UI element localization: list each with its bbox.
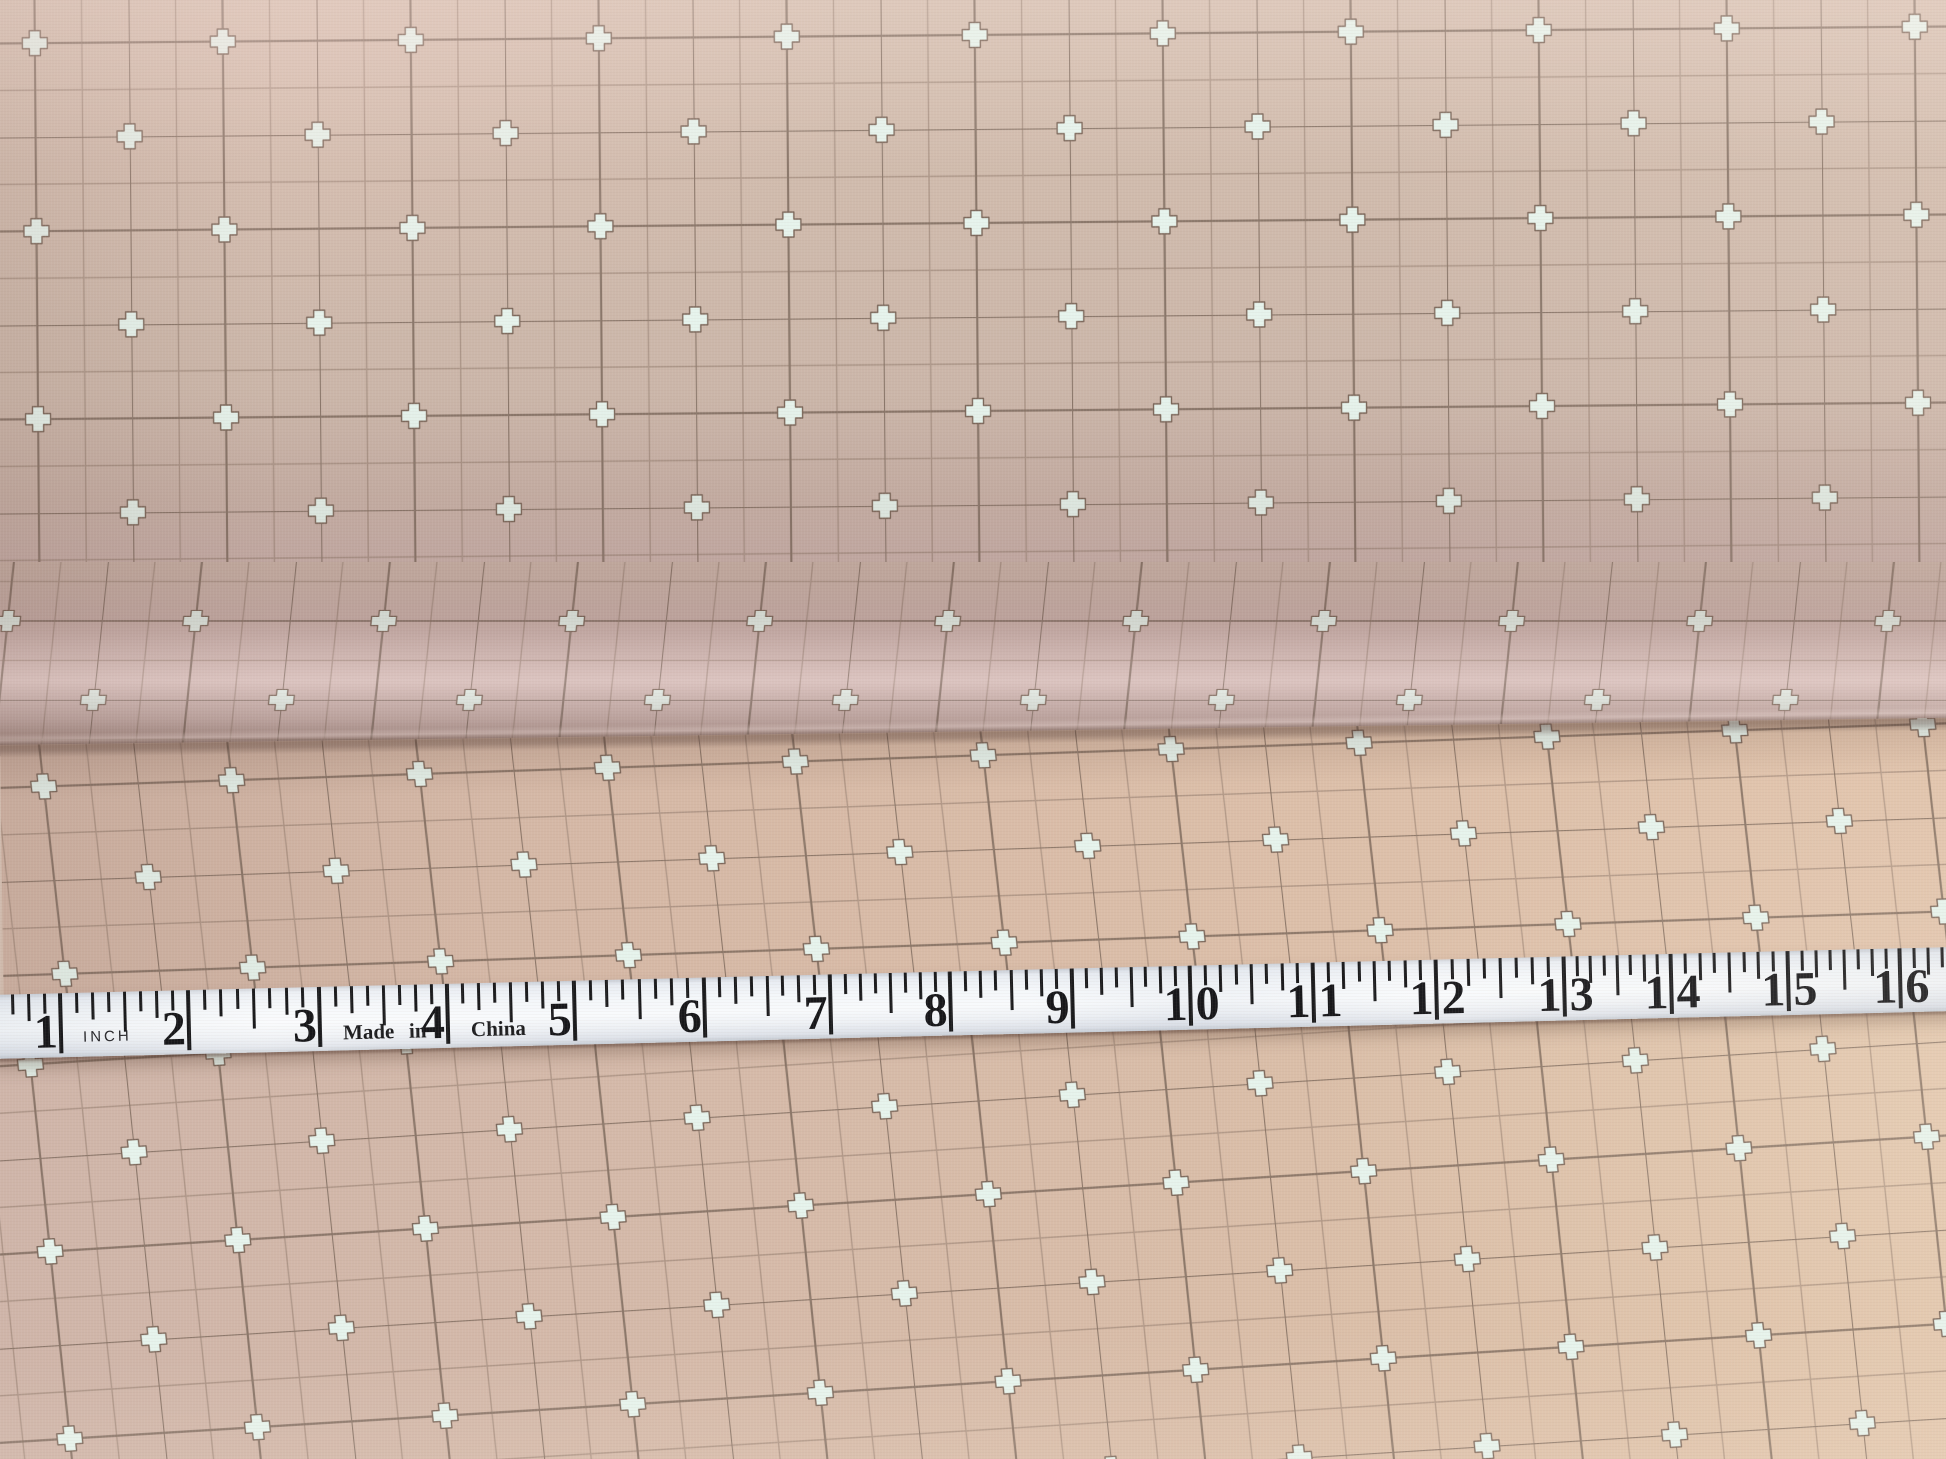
- origin-text-word-2: China: [471, 1018, 526, 1040]
- tick-mark: [1727, 952, 1731, 992]
- tick-mark: [1656, 954, 1659, 974]
- tick-mark: [1357, 962, 1360, 982]
- tick-mark: [1814, 950, 1818, 977]
- inch-number: 1: [1163, 981, 1187, 1030]
- tick-mark: [654, 979, 657, 999]
- inch-number: 3: [292, 1002, 316, 1051]
- tick-mark: [1173, 966, 1176, 986]
- tick-mark: [1742, 952, 1745, 972]
- tick-mark: [797, 975, 801, 1002]
- tick-mark: [1024, 970, 1027, 990]
- tick-mark: [843, 974, 846, 994]
- tick-mark: [285, 988, 289, 1015]
- tick-mark: [1129, 967, 1133, 1007]
- tick-mark: [781, 976, 784, 996]
- tick-mark: [1530, 957, 1534, 984]
- tick-mark: [1040, 969, 1044, 996]
- tick-mark: [1713, 953, 1716, 973]
- tick-mark: [74, 993, 77, 1013]
- tick-mark: [429, 984, 432, 1004]
- tick-mark: [186, 990, 191, 1050]
- tick-mark: [1482, 958, 1485, 978]
- tick-mark: [1897, 948, 1902, 1008]
- tick-mark: [58, 993, 63, 1053]
- tick-mark: [1388, 961, 1391, 981]
- tick-mark: [1684, 954, 1687, 974]
- tick-mark: [1466, 959, 1470, 986]
- tick-mark: [1144, 967, 1147, 987]
- inch-number: 1: [1409, 975, 1433, 1024]
- inch-number: 5: [547, 996, 571, 1045]
- tick-mark: [1800, 951, 1803, 971]
- tick-mark: [1757, 952, 1761, 979]
- tick-mark: [349, 986, 353, 1013]
- tick-mark: [1296, 963, 1299, 983]
- tick-mark: [1250, 964, 1254, 1004]
- tick-mark: [1575, 956, 1578, 976]
- tick-mark: [1280, 963, 1284, 990]
- tick-mark: [154, 991, 158, 1018]
- tick-mark: [1884, 949, 1887, 969]
- tick-mark: [1498, 958, 1502, 998]
- inch-number: 2: [161, 1005, 185, 1054]
- tick-mark: [1403, 960, 1407, 987]
- tick-mark: [1589, 956, 1593, 983]
- tick-mark: [122, 992, 126, 1032]
- tick-mark: [1009, 970, 1013, 1010]
- fabric-photo: INCH Made in China 123456789101112131415…: [0, 0, 1946, 1459]
- tick-mark: [1616, 955, 1620, 995]
- inch-number: 1: [1644, 969, 1668, 1018]
- inch-number: 1: [1761, 966, 1785, 1015]
- tick-mark: [605, 980, 609, 1007]
- tick-mark: [138, 991, 141, 1011]
- tick-mark: [1342, 962, 1346, 989]
- tick-mark: [1940, 947, 1943, 967]
- tick-mark: [979, 971, 983, 998]
- tick-mark: [381, 985, 385, 1025]
- tick-mark: [994, 970, 997, 990]
- tick-mark: [1159, 966, 1163, 993]
- tick-mark: [541, 981, 545, 1008]
- tick-mark: [1373, 961, 1377, 1001]
- inch-number: 4: [1676, 968, 1700, 1017]
- tick-mark: [1265, 964, 1268, 984]
- tick-mark: [26, 994, 30, 1021]
- tick-mark: [493, 983, 496, 1003]
- tick-mark: [1562, 956, 1567, 1016]
- tick-mark: [918, 972, 922, 999]
- tick-mark: [90, 992, 94, 1019]
- inch-number: 1: [1873, 963, 1897, 1012]
- tick-mark: [1085, 968, 1088, 988]
- tick-mark: [1419, 960, 1422, 980]
- tick-mark: [621, 980, 624, 1000]
- tick-mark: [413, 985, 417, 1012]
- tick-mark: [1434, 960, 1439, 1020]
- tick-mark: [718, 977, 721, 997]
- tick-mark: [525, 982, 528, 1002]
- tick-mark: [828, 974, 833, 1034]
- tick-mark: [686, 978, 689, 998]
- tick-mark: [1629, 955, 1632, 975]
- tick-mark: [556, 981, 559, 1001]
- tick-mark: [572, 981, 577, 1041]
- tick-mark: [445, 984, 450, 1044]
- inch-number: 1: [1286, 978, 1310, 1027]
- tick-mark: [1450, 959, 1453, 979]
- fabric-grid-pattern: [0, 0, 1946, 650]
- tick-mark: [1926, 948, 1930, 975]
- tick-mark: [301, 987, 304, 1007]
- tick-mark: [365, 986, 368, 1006]
- tick-mark: [1785, 951, 1790, 1011]
- tick-mark: [10, 994, 13, 1014]
- tick-mark: [1912, 948, 1915, 968]
- inch-number: 7: [803, 990, 827, 1039]
- tick-mark: [589, 980, 592, 1000]
- inch-number: 4: [420, 999, 444, 1048]
- tick-mark: [903, 973, 906, 993]
- tick-mark: [948, 971, 953, 1031]
- tick-mark: [219, 989, 223, 1016]
- inch-number: 5: [1793, 965, 1817, 1014]
- inch-number: 6: [1905, 963, 1929, 1012]
- tick-mark: [1188, 966, 1193, 1026]
- tick-mark: [1514, 958, 1517, 978]
- inch-number: 6: [677, 993, 701, 1042]
- tick-mark: [461, 983, 464, 1003]
- tick-mark: [670, 978, 674, 1005]
- tick-mark: [317, 987, 322, 1047]
- tick-mark: [1234, 965, 1237, 985]
- tick-mark: [1326, 962, 1329, 982]
- tick-mark: [509, 982, 513, 1022]
- tick-mark: [702, 978, 707, 1038]
- inch-number: 1: [1318, 977, 1342, 1026]
- tick-mark: [252, 989, 256, 1029]
- tick-mark: [765, 976, 769, 1016]
- tick-mark: [42, 994, 45, 1014]
- inch-number: 8: [923, 987, 947, 1036]
- tick-mark: [1642, 955, 1646, 982]
- tick-mark: [1698, 953, 1702, 980]
- tick-mark: [1842, 950, 1846, 990]
- tick-mark: [1219, 965, 1223, 992]
- tick-mark: [477, 983, 481, 1010]
- tick-mark: [1070, 969, 1075, 1029]
- fabric-roll-top: [0, 0, 1946, 756]
- inch-number: 9: [1045, 984, 1069, 1033]
- inch-number: 1: [33, 1008, 57, 1057]
- tick-mark: [734, 977, 738, 1004]
- tick-mark: [888, 973, 892, 1013]
- inch-number: 1: [1537, 972, 1561, 1021]
- tick-mark: [1856, 949, 1859, 969]
- tick-mark: [203, 990, 206, 1010]
- tick-mark: [933, 972, 936, 992]
- tick-mark: [1602, 956, 1605, 976]
- tick-mark: [1311, 963, 1316, 1023]
- tick-mark: [397, 985, 400, 1005]
- tick-mark: [1668, 954, 1673, 1014]
- tick-mark: [1114, 967, 1117, 987]
- tick-mark: [268, 988, 271, 1008]
- origin-text-word-0: Made: [343, 1021, 395, 1043]
- tick-mark: [1546, 957, 1549, 977]
- tick-mark: [1771, 951, 1774, 971]
- tick-mark: [873, 973, 876, 993]
- tick-mark: [1100, 968, 1104, 995]
- tick-mark: [236, 989, 239, 1009]
- tick-mark: [1204, 965, 1207, 985]
- inch-number: 2: [1441, 974, 1465, 1023]
- tick-mark: [637, 979, 641, 1019]
- tick-mark: [813, 975, 816, 995]
- tick-mark: [858, 974, 862, 1001]
- tick-mark: [106, 992, 109, 1012]
- tick-mark: [963, 971, 966, 991]
- tick-mark: [750, 976, 753, 996]
- tick-mark: [1828, 950, 1831, 970]
- tick-mark: [170, 991, 173, 1011]
- tick-mark: [333, 987, 336, 1007]
- inch-number: 0: [1195, 980, 1219, 1029]
- tick-mark: [1055, 969, 1058, 989]
- tick-mark: [1870, 949, 1874, 976]
